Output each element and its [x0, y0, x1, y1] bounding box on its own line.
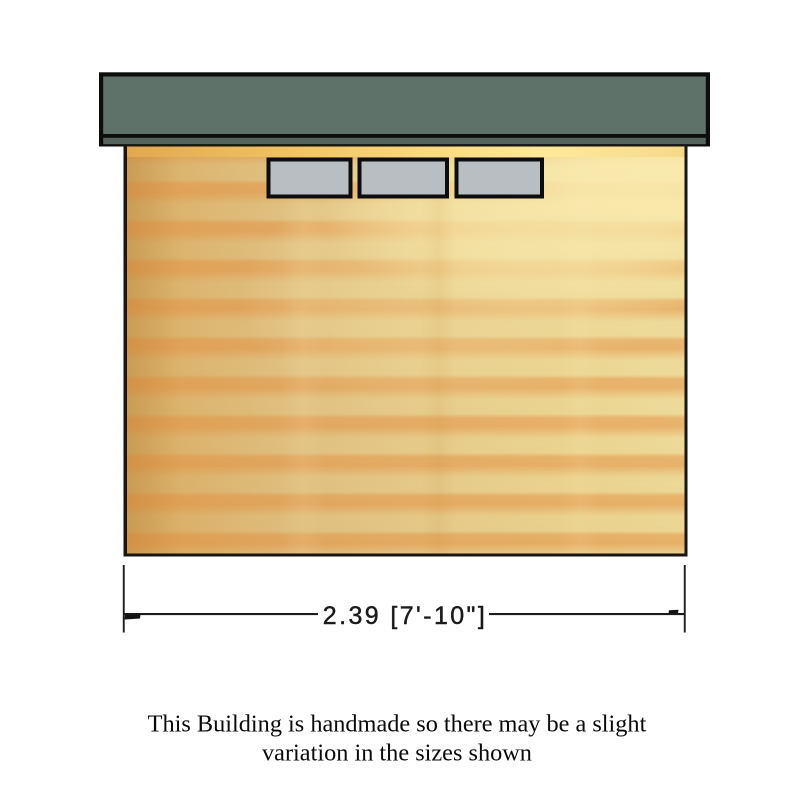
svg-text:This Building is handmade so t: This Building is handmade so there may b… [148, 711, 647, 738]
svg-text:2.39 [7'-10"]: 2.39 [7'-10"] [323, 602, 487, 630]
svg-text:variation in the sizes shown: variation in the sizes shown [262, 739, 532, 766]
